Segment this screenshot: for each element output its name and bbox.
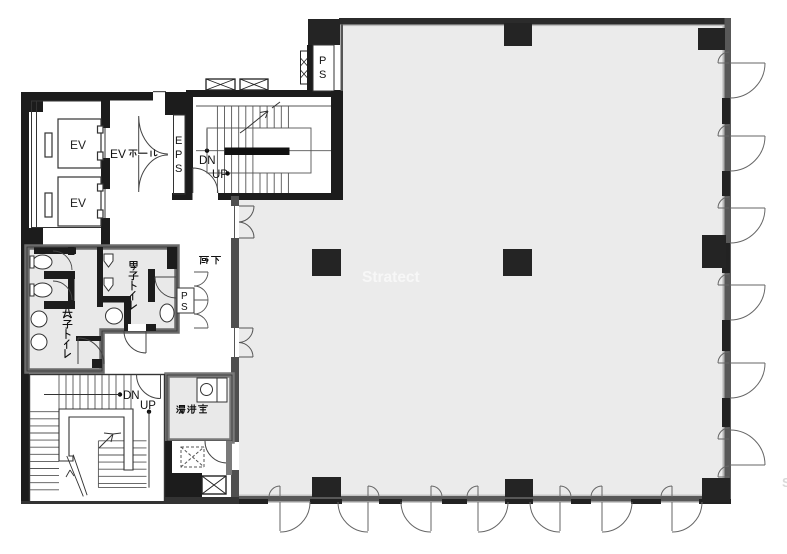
svg-text:E: E (175, 135, 182, 147)
svg-text:P: P (181, 291, 188, 302)
svg-text:EV: EV (110, 147, 126, 161)
svg-text:DN: DN (199, 155, 216, 167)
svg-text:UP: UP (140, 400, 156, 412)
svg-text:P: P (319, 55, 326, 67)
svg-text:EV: EV (70, 196, 86, 210)
svg-text:DN: DN (123, 390, 140, 402)
svg-text:UP: UP (212, 169, 228, 181)
svg-text:S: S (319, 69, 326, 81)
svg-text:P: P (175, 149, 182, 161)
svg-text:S: S (181, 302, 188, 313)
svg-text:EV: EV (70, 138, 86, 152)
svg-text:Str: Str (782, 475, 787, 490)
svg-text:Stratect: Stratect (362, 269, 420, 286)
svg-text:S: S (175, 163, 182, 175)
